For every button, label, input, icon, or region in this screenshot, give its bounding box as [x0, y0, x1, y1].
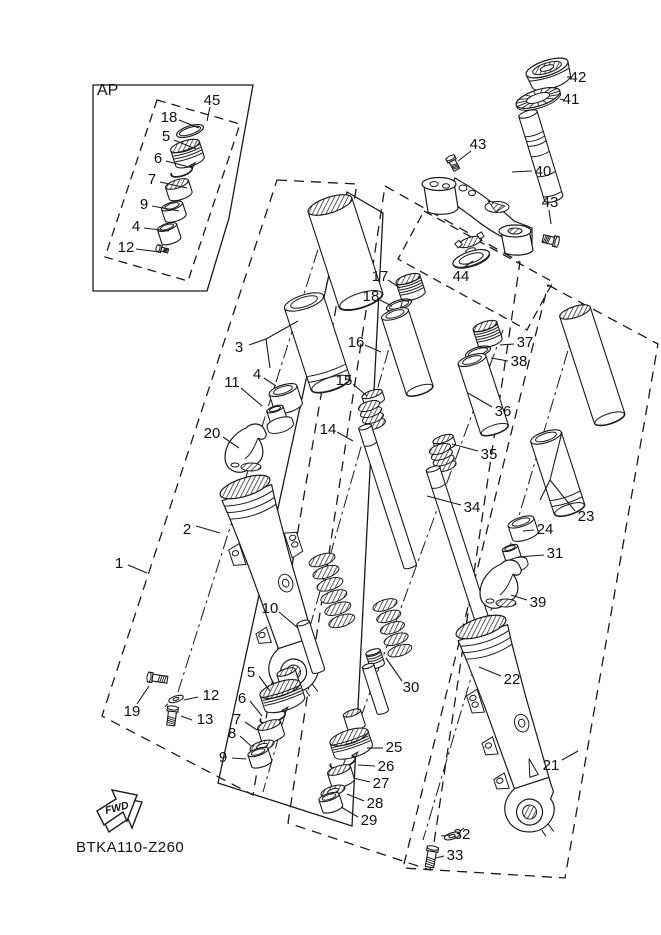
callout-45: 45 — [204, 92, 221, 121]
callout-number-12: 12 — [118, 239, 135, 256]
callout-number-14: 14 — [320, 421, 337, 438]
callout-number-9: 9 — [219, 749, 227, 766]
callout-32: 32 — [441, 826, 470, 843]
callout-number-18: 18 — [161, 109, 178, 126]
callout-number-12: 12 — [203, 687, 220, 704]
callout-18: 18 — [161, 109, 199, 128]
ap-screw-12 — [155, 244, 169, 254]
callout-30: 30 — [386, 658, 419, 696]
callout-number-6: 6 — [154, 150, 162, 167]
callout-number-39: 39 — [530, 594, 547, 611]
protector-20 — [225, 424, 266, 472]
washer-12 — [163, 694, 185, 707]
callout-number-43: 43 — [470, 136, 487, 153]
ap-bushing-7 — [164, 176, 193, 203]
rebound-spring-10 — [307, 550, 356, 630]
callout-number-17: 17 — [372, 268, 389, 285]
callout-number-30: 30 — [403, 679, 420, 696]
callout-number-19: 19 — [124, 703, 141, 720]
callout-number-23: 23 — [578, 508, 595, 525]
steering-stem-40 — [518, 108, 564, 204]
inner-tube-23-lower — [529, 427, 586, 520]
callout-number-36: 36 — [495, 403, 512, 420]
callout-13: 13 — [181, 711, 213, 728]
callout-9: 9 — [219, 749, 246, 766]
dust-seal-44 — [446, 232, 491, 272]
damper-rod-30-lower — [362, 662, 390, 715]
callout-number-44: 44 — [453, 268, 470, 285]
callout-40: 40 — [512, 163, 551, 180]
ap-bushing-9 — [160, 199, 187, 224]
callout-number-10: 10 — [262, 600, 279, 617]
callout-41: 41 — [560, 91, 579, 108]
damper-rod-34 — [426, 465, 493, 636]
callout-number-7: 7 — [148, 171, 156, 188]
oil-seal-25 — [328, 724, 375, 763]
callout-number-8: 8 — [228, 725, 236, 742]
bolt-19 — [146, 672, 168, 685]
callout-number-4: 4 — [253, 366, 261, 383]
callout-43: 43 — [542, 194, 559, 224]
callout-19: 19 — [124, 686, 149, 720]
bolt-43-right — [542, 233, 560, 247]
callout-4: 4 — [253, 366, 276, 386]
callout-number-31: 31 — [547, 545, 564, 562]
callout-number-9: 9 — [140, 196, 148, 213]
callout-number-37: 37 — [517, 334, 534, 351]
bolt-43-upper — [445, 154, 461, 172]
callout-number-28: 28 — [367, 795, 384, 812]
callout-35: 35 — [452, 444, 497, 463]
callout-26: 26 — [358, 758, 394, 775]
callout-number-34: 34 — [464, 499, 481, 516]
callout-number-3: 3 — [235, 339, 243, 356]
ap-cap-bolt-5 — [169, 137, 206, 171]
callout-number-13: 13 — [197, 711, 214, 728]
callout-2: 2 — [183, 521, 220, 538]
callout-number-5: 5 — [247, 664, 255, 681]
callout-number-1: 1 — [115, 555, 123, 572]
callout-number-22: 22 — [504, 671, 521, 688]
ap-collar-4 — [156, 221, 181, 247]
callout-15: 15 — [336, 372, 367, 396]
callout-number-21: 21 — [543, 757, 560, 774]
callout-33: 33 — [436, 847, 463, 864]
callout-number-38: 38 — [511, 353, 528, 370]
fwd-arrow: FWD — [97, 790, 142, 832]
callout-number-32: 32 — [454, 826, 471, 843]
callout-number-24: 24 — [537, 521, 554, 538]
callout-number-18: 18 — [363, 288, 380, 305]
callout-number-25: 25 — [386, 739, 403, 756]
ap-label: AP — [97, 82, 118, 99]
callout-number-45: 45 — [204, 92, 221, 109]
callout-number-27: 27 — [373, 775, 390, 792]
callout-number-35: 35 — [481, 446, 498, 463]
callout-12: 12 — [118, 239, 160, 256]
callout-5: 5 — [247, 664, 270, 691]
outer-tube-22 — [445, 610, 573, 846]
callout-25: 25 — [367, 739, 402, 756]
callout-number-2: 2 — [183, 521, 191, 538]
callout-18: 18 — [363, 288, 392, 306]
callout-27: 27 — [353, 775, 389, 792]
diagram-code: BTKA110-Z260 — [76, 839, 184, 856]
callout-number-4: 4 — [132, 218, 140, 235]
callout-number-43: 43 — [542, 194, 559, 211]
callout-number-33: 33 — [447, 847, 464, 864]
callout-7: 7 — [233, 711, 257, 730]
bolt-13 — [165, 705, 178, 726]
callout-number-16: 16 — [348, 334, 365, 351]
callout-number-41: 41 — [563, 91, 580, 108]
callout-3: 3 — [235, 321, 298, 368]
callout-42: 42 — [567, 69, 586, 86]
callout-12: 12 — [184, 687, 219, 704]
callout-8: 8 — [228, 725, 251, 746]
callout-number-29: 29 — [361, 812, 378, 829]
callout-6: 6 — [238, 690, 262, 716]
cap-bolt-37 — [472, 318, 504, 350]
callout-number-20: 20 — [204, 425, 221, 442]
callout-number-11: 11 — [224, 374, 240, 391]
callout-1: 1 — [115, 555, 147, 573]
protector-39 — [480, 560, 521, 608]
callout-38: 38 — [491, 353, 527, 370]
bolt-33 — [424, 845, 439, 868]
damper-rod-14 — [358, 423, 417, 570]
callout-number-6: 6 — [238, 690, 246, 707]
inner-rod-tube-36 — [457, 351, 510, 439]
callout-number-15: 15 — [336, 372, 353, 389]
parts-diagram: 4518567941242414340434417181634111514202… — [0, 0, 661, 935]
callout-number-40: 40 — [535, 163, 552, 180]
callout-number-5: 5 — [162, 128, 170, 145]
callout-number-42: 42 — [570, 69, 587, 86]
callout-43: 43 — [458, 136, 486, 161]
diagram-canvas: 4518567941242414340434417181634111514202… — [0, 0, 661, 935]
callout-number-26: 26 — [378, 758, 395, 775]
bushing-24 — [507, 513, 540, 543]
callout-21: 21 — [543, 751, 578, 774]
callout-37: 37 — [500, 334, 533, 351]
